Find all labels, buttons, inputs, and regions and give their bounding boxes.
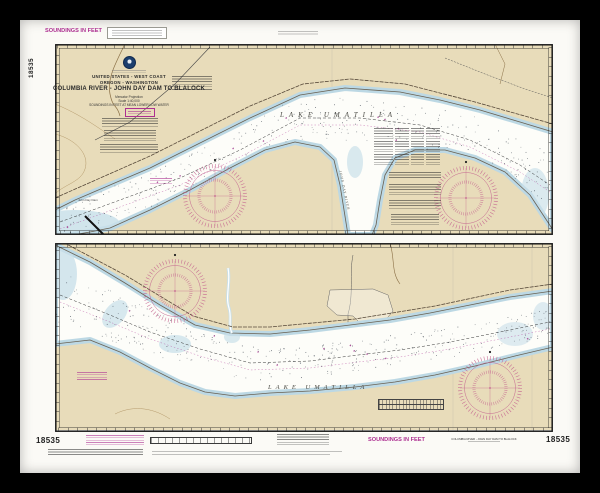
john-day-dam-label: John Day Dam: [78, 198, 98, 202]
note-block-3: [389, 200, 441, 209]
small-subtitle-bottom: [468, 441, 500, 443]
title-note-3: [100, 144, 158, 154]
bottom-fine-print-line1: [152, 451, 342, 453]
note-block-1: [389, 172, 441, 180]
authorities-note: [172, 76, 212, 90]
bottom-center-print: [277, 434, 329, 446]
upper-magenta-note: [150, 178, 172, 184]
lower-magenta-note: [77, 372, 107, 381]
chart-number-vertical: 18535: [28, 58, 35, 78]
framed-nautical-chart: { "chart": { "number": "18535", "title":…: [0, 0, 600, 493]
chart-number-bottom-right: 18535: [546, 435, 570, 444]
noaa-caption: [112, 70, 146, 73]
title-region: OREGON - WASHINGTON: [79, 80, 179, 85]
lower-scale-table-row2: [378, 404, 444, 410]
chart-paper: SOUNDINGS IN FEET 18535: [20, 20, 580, 473]
bottom-fine-print-left: [48, 449, 143, 456]
top-margin-fine-print: [278, 31, 318, 36]
lake-umatilla-label-upper: LAKE UMATILLA: [280, 111, 397, 119]
edition-stamp-box: [107, 27, 167, 39]
tabulation-block: [374, 128, 440, 166]
title-authority: UNITED STATES - WEST COAST: [79, 74, 179, 79]
note-block-4: [391, 214, 439, 226]
soundings-note-bottom: SOUNDINGS IN FEET: [368, 437, 425, 443]
title-note-1: [102, 118, 158, 127]
bottom-magenta-print: [86, 435, 144, 445]
caution-box: [125, 108, 155, 117]
lower-panel: [55, 238, 553, 432]
lake-umatilla-label-lower: LAKE UMATILLA: [268, 384, 368, 391]
edition-stamp-text: [112, 30, 162, 36]
noaa-logo: [123, 56, 136, 69]
bottom-scale-bar: [150, 437, 252, 444]
note-block-2: [389, 184, 441, 196]
chart-number-bottom-left: 18535: [36, 436, 60, 445]
bottom-fine-print-line2: [152, 454, 330, 456]
title-note-2: [104, 130, 156, 141]
title-datum: SOUNDINGS IN FEET AT MEAN LOWER LOW WATE…: [79, 103, 179, 107]
soundings-note-top: SOUNDINGS IN FEET: [45, 28, 102, 34]
